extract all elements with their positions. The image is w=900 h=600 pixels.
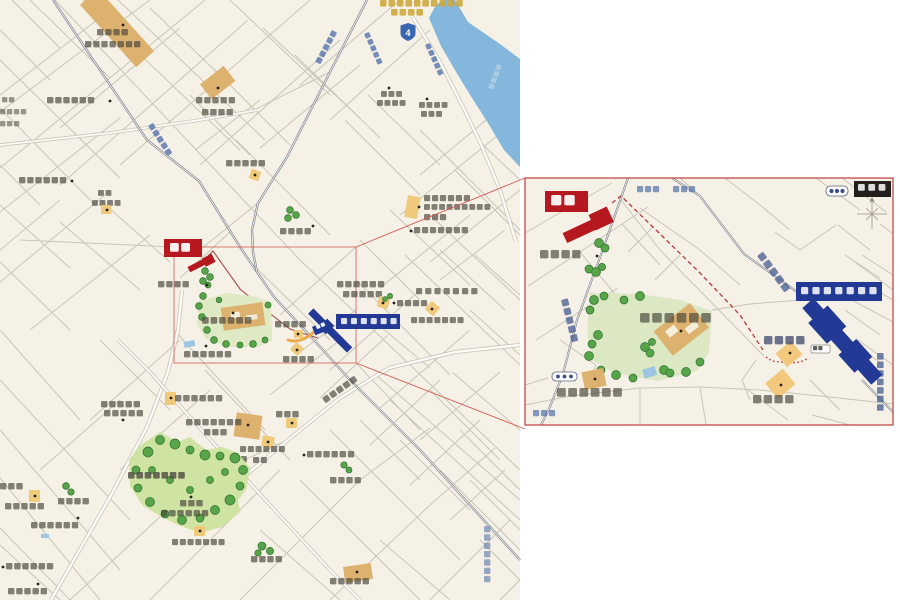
svg-text:4: 4 <box>405 28 410 38</box>
